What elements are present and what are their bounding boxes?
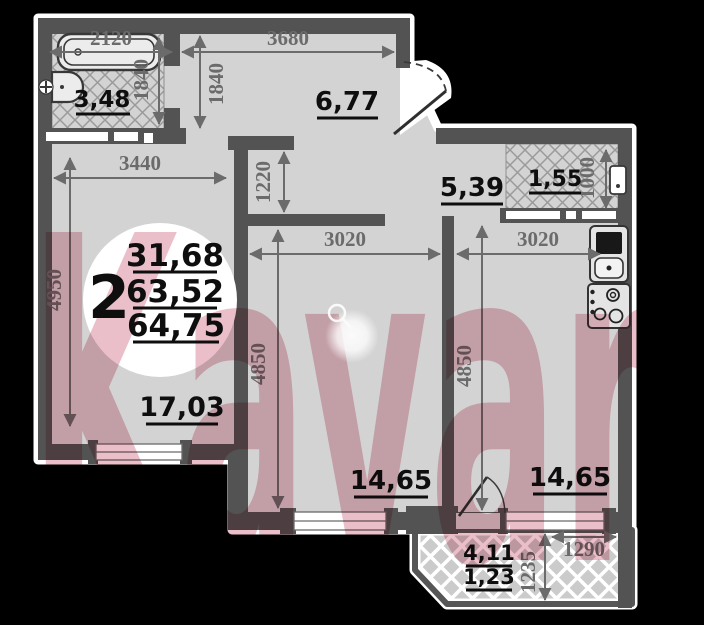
dimension-bath-depth: 1840 [129,59,153,101]
bathroom-cabinet-mark [144,133,153,143]
bathroom-cabinet-mark [114,132,138,141]
area-label-bathroom: 3,48 [74,87,131,113]
badge-living-area: 31,68 [126,238,224,274]
dimension-hallway-width: 3680 [267,26,309,50]
wall-bathroom-right-upper [164,18,180,66]
floor-plan-page: 2120 1840 1840 3680 3440 1220 4950 3020 … [0,0,704,625]
watermark-text: Kayan [28,143,697,625]
badge-area-no-balcony: 63,52 [126,274,224,310]
badge-total-area: 64,75 [127,308,225,344]
watermark: Kayan [28,143,697,625]
area-label-hallway: 6,77 [315,87,379,117]
dimension-bath-width: 2120 [90,26,132,50]
dimension-nook-depth: 1840 [204,63,228,105]
bathroom-cabinet-mark [46,132,108,141]
floor-plan-drawing: 2120 1840 1840 3680 3440 1220 4950 3020 … [0,0,704,625]
wall-kitchen-top [436,128,632,144]
badge-rooms-count: 2 [88,263,130,333]
